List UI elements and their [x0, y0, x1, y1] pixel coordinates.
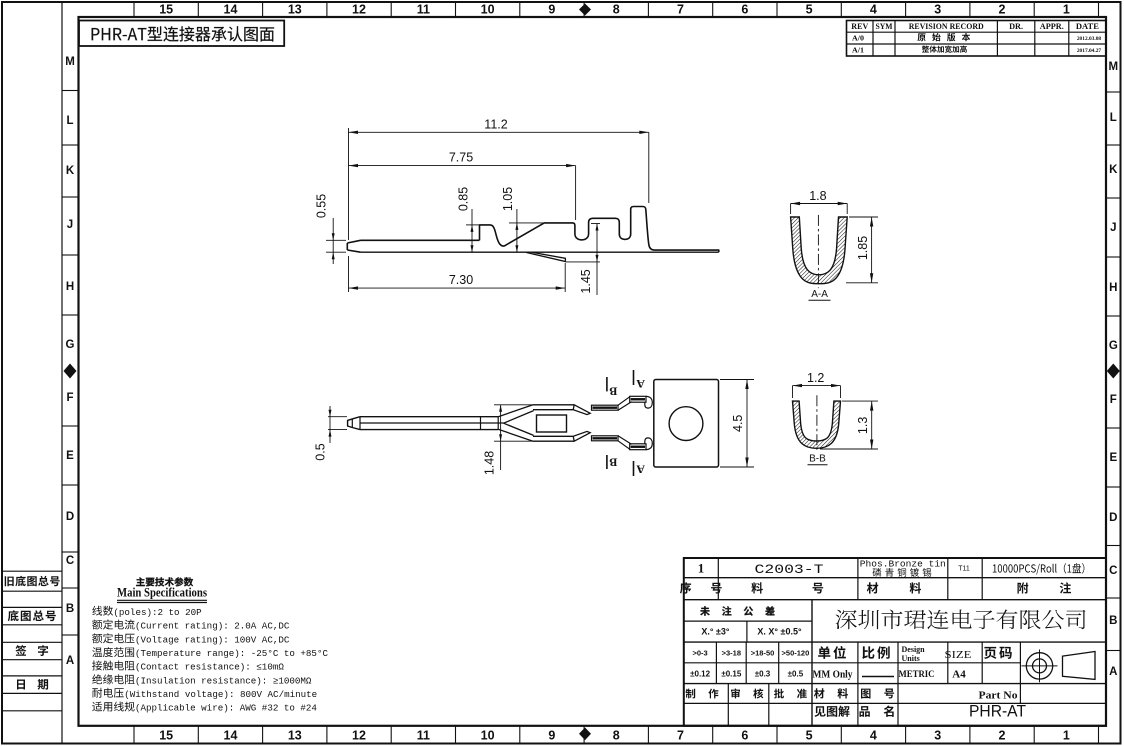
- svg-text:1.48: 1.48: [482, 451, 496, 475]
- svg-text:B: B: [609, 456, 617, 470]
- svg-text:A: A: [1109, 666, 1117, 678]
- svg-text:PHR-AT: PHR-AT: [969, 702, 1026, 720]
- svg-text:MM Only: MM Only: [813, 669, 853, 681]
- svg-text:5: 5: [806, 728, 813, 742]
- svg-text:>50-120: >50-120: [782, 648, 810, 657]
- svg-text:T11: T11: [958, 566, 970, 573]
- svg-text:SYM: SYM: [876, 21, 893, 31]
- svg-text:REV: REV: [851, 21, 869, 31]
- svg-text:1.05: 1.05: [501, 187, 515, 211]
- svg-text:D: D: [66, 511, 74, 523]
- svg-text:10: 10: [481, 728, 495, 742]
- svg-text:15: 15: [159, 3, 173, 17]
- svg-text:0.5: 0.5: [313, 443, 327, 460]
- svg-text:2: 2: [999, 728, 1006, 742]
- svg-text:13: 13: [288, 3, 302, 17]
- svg-text:Phos.Bronze tin: Phos.Bronze tin: [860, 559, 946, 570]
- svg-text:1.2: 1.2: [807, 371, 824, 385]
- svg-text:A/1: A/1: [852, 45, 864, 54]
- svg-text:8: 8: [613, 3, 620, 17]
- svg-text:DATE: DATE: [1076, 21, 1099, 31]
- svg-text:B: B: [1109, 615, 1117, 627]
- svg-text:(Voltage rating): 100V AC,DC: (Voltage rating): 100V AC,DC: [135, 634, 290, 645]
- svg-text:12: 12: [352, 728, 366, 742]
- svg-text:B-B: B-B: [809, 454, 826, 465]
- svg-text:2: 2: [999, 3, 1006, 17]
- svg-text:X. X° ±0.5°: X. X° ±0.5°: [757, 627, 802, 637]
- svg-text:7: 7: [677, 728, 684, 742]
- svg-text:>18-50: >18-50: [751, 648, 775, 657]
- svg-text:(Applicable wire): AWG #32 to: (Applicable wire): AWG #32 to #24: [135, 703, 317, 714]
- svg-text:B: B: [609, 385, 617, 399]
- svg-text:4: 4: [870, 728, 877, 742]
- svg-text:3: 3: [934, 3, 941, 17]
- svg-text:±0.3: ±0.3: [755, 670, 771, 679]
- svg-text:2012.03.08: 2012.03.08: [1077, 36, 1102, 42]
- svg-text:K: K: [1109, 164, 1118, 176]
- svg-text:1: 1: [1063, 3, 1070, 17]
- svg-text:Main Specifications: Main Specifications: [117, 586, 207, 600]
- svg-text:10: 10: [481, 3, 495, 17]
- svg-text:(Temperature range): -25°C to: (Temperature range): -25°C to +85°C: [135, 648, 328, 659]
- svg-text:(Contact resistance): ≤10mΩ: (Contact resistance): ≤10mΩ: [135, 662, 284, 673]
- svg-text:G: G: [66, 339, 75, 351]
- svg-text:A: A: [636, 377, 645, 391]
- svg-text:A4: A4: [952, 669, 966, 681]
- svg-text:3: 3: [934, 728, 941, 742]
- svg-text:Design: Design: [902, 645, 926, 654]
- svg-text:14: 14: [224, 728, 238, 742]
- svg-text:15: 15: [159, 728, 173, 742]
- svg-text:J: J: [1110, 222, 1116, 234]
- svg-text:14: 14: [224, 3, 238, 17]
- svg-text:5: 5: [806, 3, 813, 17]
- svg-text:F: F: [66, 392, 73, 404]
- svg-text:A/0: A/0: [852, 33, 864, 42]
- svg-text:11: 11: [417, 728, 430, 742]
- svg-text:1.3: 1.3: [856, 417, 870, 434]
- svg-text:±0.5: ±0.5: [788, 670, 804, 679]
- svg-text:DR.: DR.: [1009, 21, 1023, 31]
- svg-text:(Withstand voltage): 800V AC/m: (Withstand voltage): 800V AC/minute: [124, 689, 317, 700]
- svg-text:7.30: 7.30: [449, 273, 473, 287]
- svg-text:H: H: [1109, 282, 1117, 294]
- svg-text:8: 8: [613, 728, 620, 742]
- svg-text:C: C: [1109, 565, 1117, 577]
- svg-text:A: A: [636, 463, 645, 477]
- svg-text:0.55: 0.55: [314, 194, 328, 218]
- svg-text:X.° ±3°: X.° ±3°: [701, 627, 730, 637]
- svg-text:12: 12: [352, 3, 366, 17]
- svg-text:4: 4: [870, 3, 877, 17]
- svg-text:7: 7: [677, 3, 684, 17]
- svg-text:9: 9: [548, 3, 555, 17]
- svg-text:(poles):2 to 20P: (poles):2 to 20P: [113, 607, 202, 618]
- svg-text:REVISION RECORD: REVISION RECORD: [909, 21, 984, 31]
- svg-text:METRIC: METRIC: [899, 669, 935, 679]
- svg-text:L: L: [66, 115, 73, 127]
- svg-text:1.8: 1.8: [809, 189, 826, 203]
- svg-text:A: A: [66, 655, 74, 667]
- svg-text:>0-3: >0-3: [692, 648, 707, 657]
- svg-text:(Current rating): 2.0A AC,DC: (Current rating): 2.0A AC,DC: [135, 621, 290, 632]
- svg-text:1: 1: [1063, 728, 1070, 742]
- svg-text:6: 6: [741, 728, 748, 742]
- svg-text:1.85: 1.85: [856, 236, 870, 260]
- svg-text:1: 1: [698, 561, 705, 576]
- svg-text:H: H: [66, 281, 74, 293]
- svg-text:11: 11: [417, 3, 430, 17]
- svg-text:Part No: Part No: [979, 691, 1018, 702]
- svg-text:E: E: [1109, 452, 1117, 464]
- svg-text:(Insulation resistance): ≥1000: (Insulation resistance): ≥1000MΩ: [135, 675, 312, 686]
- svg-text:J: J: [67, 219, 73, 231]
- svg-text:6: 6: [741, 3, 748, 17]
- svg-text:K: K: [66, 165, 75, 177]
- svg-text:L: L: [1110, 112, 1117, 124]
- svg-text:±0.15: ±0.15: [721, 670, 742, 679]
- svg-text:1.45: 1.45: [579, 269, 593, 293]
- svg-text:G: G: [1109, 340, 1118, 352]
- svg-text:2017.04.27: 2017.04.27: [1077, 48, 1102, 54]
- svg-text:>3-18: >3-18: [722, 648, 741, 657]
- svg-text:M: M: [65, 56, 75, 68]
- svg-text:C2003-T: C2003-T: [755, 562, 824, 577]
- svg-text:13: 13: [288, 728, 302, 742]
- svg-text:F: F: [1110, 394, 1117, 406]
- svg-text:A-A: A-A: [811, 289, 828, 300]
- svg-text:±0.12: ±0.12: [690, 670, 711, 679]
- svg-text:7.75: 7.75: [449, 151, 473, 165]
- svg-text:C: C: [66, 555, 74, 567]
- svg-text:B: B: [66, 603, 74, 615]
- svg-text:APPR.: APPR.: [1040, 21, 1064, 31]
- svg-text:SIZE: SIZE: [945, 650, 972, 661]
- svg-text:M: M: [1109, 61, 1119, 73]
- svg-text:4.5: 4.5: [731, 415, 745, 432]
- svg-text:E: E: [66, 450, 74, 462]
- svg-text:0.85: 0.85: [457, 187, 471, 211]
- svg-text:11.2: 11.2: [484, 117, 507, 131]
- svg-text:9: 9: [548, 728, 555, 742]
- svg-text:Units: Units: [902, 654, 920, 663]
- svg-text:D: D: [1109, 512, 1117, 524]
